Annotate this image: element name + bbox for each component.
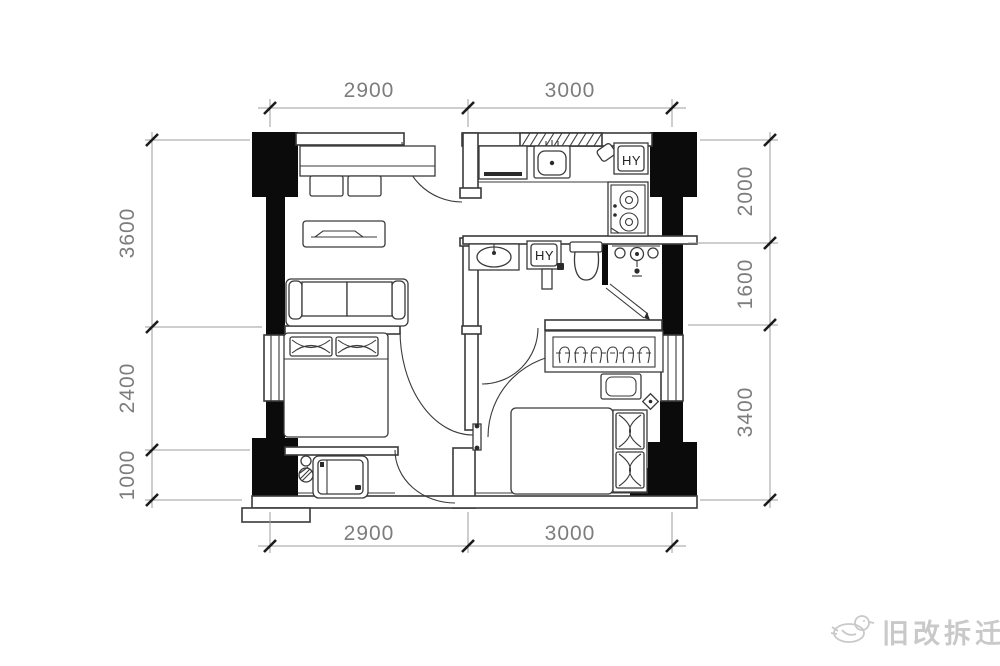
- dim-left-1: 3600: [116, 208, 139, 259]
- wall-left-lower: [266, 401, 285, 443]
- dim-right: 2000 1600 3400: [688, 132, 778, 508]
- desk: [300, 146, 435, 196]
- dim-left: 3600 2400 1000: [116, 132, 262, 508]
- kitchen-sink: [534, 140, 570, 178]
- dim-bottom-left: 2900: [344, 522, 395, 545]
- bedroom1-door-arc: [400, 330, 473, 435]
- mid-wall-lower: [465, 330, 478, 430]
- balcony-door-arc: [395, 450, 455, 503]
- single-bed: [511, 408, 647, 494]
- chair: [348, 176, 381, 196]
- kitchen-furniture: HY: [478, 140, 648, 236]
- mid-wall-lower-cap: [462, 326, 481, 334]
- bathroom-furniture: HY: [469, 241, 660, 289]
- balcony-furniture: [299, 456, 368, 498]
- drain-symbol: [643, 394, 659, 410]
- water-heater-kitchen: HY: [614, 143, 648, 174]
- double-bed: [284, 333, 388, 437]
- dim-left-3: 1000: [116, 450, 139, 501]
- door-leaf-hinge: [473, 424, 481, 451]
- pillow: [616, 452, 644, 488]
- dim-bottom: 2900 3000: [258, 512, 686, 553]
- floor-drain: [299, 456, 313, 482]
- wall-right-lower: [660, 401, 683, 445]
- window-left: [264, 335, 286, 401]
- wardrobe: [545, 331, 663, 372]
- watermark-bird-icon: [831, 616, 874, 642]
- dim-bottom-right: 3000: [545, 522, 596, 545]
- chair: [310, 176, 343, 196]
- dim-top: 2900 3000: [258, 79, 686, 127]
- pillow: [290, 337, 332, 356]
- fridge: [479, 146, 527, 179]
- dim-right-1: 2000: [734, 166, 757, 217]
- shower-head-symbol: [612, 246, 660, 276]
- bedroom2-furniture: [511, 331, 663, 494]
- top-wall-left: [296, 133, 404, 145]
- water-heater-kitchen-label: HY: [622, 153, 641, 168]
- gas-stove: [608, 182, 648, 236]
- toilet: [570, 242, 602, 280]
- sofa: [286, 279, 408, 326]
- partition-balcony: [285, 447, 398, 455]
- column-top-right: [650, 132, 697, 197]
- window-right: [661, 335, 683, 401]
- tv-console: [303, 221, 385, 247]
- water-heater-bath: HY: [527, 241, 564, 289]
- bath-bottom-wall: [545, 320, 662, 330]
- dim-right-2: 1600: [734, 259, 757, 310]
- pillow: [336, 337, 378, 356]
- wall-right-upper: [662, 195, 683, 335]
- dim-right-3: 3400: [734, 387, 757, 438]
- mid-wall-top: [463, 133, 478, 190]
- nightstand: [601, 374, 641, 399]
- water-heater-bath-label: HY: [535, 248, 554, 263]
- dim-top-right: 3000: [545, 79, 596, 102]
- pillow: [616, 413, 644, 449]
- shower-pivot-door: [606, 284, 650, 320]
- dim-top-left: 2900: [344, 79, 395, 102]
- wash-basin: [469, 244, 519, 270]
- bath-door-arc: [482, 328, 538, 384]
- mid-wall-top-cap: [460, 188, 481, 198]
- column-top-left: [252, 132, 298, 197]
- watermark: 旧改拆迁: [831, 616, 1000, 649]
- floor-plan-page: HY HY: [0, 0, 1000, 666]
- watermark-text: 旧改拆迁: [882, 619, 1000, 649]
- bedroom1-furniture: [284, 146, 435, 437]
- shower-divider: [602, 243, 608, 285]
- dim-left-2: 2400: [116, 363, 139, 414]
- wall-left-upper: [266, 195, 285, 335]
- floor-plan-canvas: HY HY: [0, 0, 1000, 666]
- window-kitchen-hatch: [520, 133, 602, 146]
- bottom-step: [242, 508, 310, 522]
- washing-machine: [313, 456, 368, 498]
